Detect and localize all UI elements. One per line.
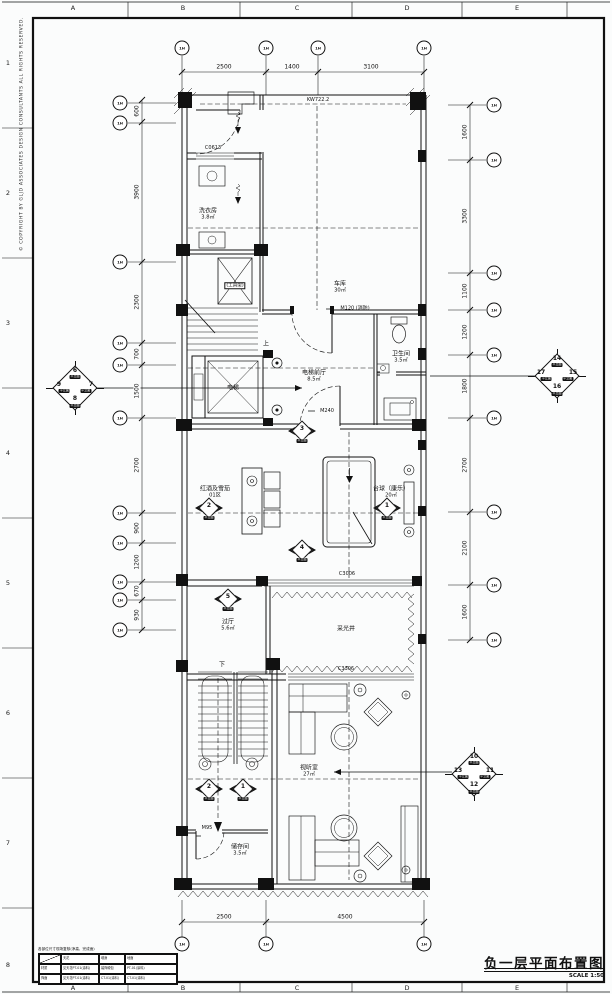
grid-number-left: 3 xyxy=(6,319,10,327)
grid-number-left: 4 xyxy=(6,449,10,457)
grid-bubble: 1H xyxy=(487,266,502,281)
room-label-wine: 红酒及雪茄 01区 xyxy=(200,485,230,498)
table-cell: 装饰硬包 xyxy=(99,964,125,974)
room-name: 台球（康乐） xyxy=(373,485,409,492)
room-label-bath: 卫生间 3.5㎡ xyxy=(392,350,410,363)
direction-marker-2: 2 平立面 xyxy=(198,499,220,529)
room-label-garage: 车库 30㎡ xyxy=(334,280,346,293)
room-name: 电梯前厅 xyxy=(302,369,326,376)
stair-down-label: 下 xyxy=(219,661,225,668)
grid-bubble: 1H xyxy=(259,41,274,56)
floor-plan-linework xyxy=(0,0,612,994)
room-label-tool-rack: (工具架) xyxy=(224,281,245,289)
room-label-lobby: 电梯前厅 8.5㎡ xyxy=(302,369,326,382)
table-cell: PT-01(涂料) xyxy=(125,964,177,974)
grid-letter-top: D xyxy=(404,4,409,12)
grid-number-left: 1 xyxy=(6,59,10,67)
elevation-number: 12 xyxy=(451,782,497,788)
elevation-marker-bottom-right: 10 13 11 12 平立面 平立面 平立面 平立面 xyxy=(451,751,497,797)
grid-bubble: 1H xyxy=(175,41,190,56)
direction-caption: 平立面 xyxy=(381,516,392,520)
door-tag-m240: M240 xyxy=(320,408,334,414)
dim-left: 700 xyxy=(134,347,141,360)
title-underline xyxy=(484,968,604,969)
dim-top: 3100 xyxy=(362,64,379,71)
window-tag-c0613: C0613 xyxy=(205,145,221,151)
table-header-cell: 地面 xyxy=(125,954,177,964)
sheet-scale: SCALE 1:50 xyxy=(569,973,604,979)
elevation-caption: 平立面 xyxy=(59,389,70,393)
room-area: 3.5㎡ xyxy=(392,357,410,363)
grid-bubble: 1H xyxy=(113,255,128,270)
room-name: 卫生间 xyxy=(392,350,410,357)
grid-letter-bottom: B xyxy=(181,984,185,992)
direction-number: 2 xyxy=(198,503,220,509)
elevation-number: 7 xyxy=(68,382,114,388)
room-label-lightwell: 采光井 xyxy=(337,625,355,632)
elevation-caption: 平立面 xyxy=(468,790,479,794)
door-tag-m120: M120 (消防) xyxy=(340,305,369,312)
direction-marker-2b: 2 平立面 xyxy=(198,780,220,810)
dim-left: 2300 xyxy=(134,293,141,310)
sheet-title: 负一层平面布置图 xyxy=(484,952,604,972)
room-name: 洗衣房 xyxy=(199,207,217,214)
table-cell: CT-01(涂料) xyxy=(99,974,125,984)
grid-bubble: 1H xyxy=(487,303,502,318)
dim-left: 2700 xyxy=(134,456,141,473)
grid-bubble: 1H xyxy=(417,937,432,952)
direction-number: 1 xyxy=(376,503,398,509)
direction-number: 1 xyxy=(232,784,254,790)
grid-bubble: 1H xyxy=(311,41,326,56)
dim-right: 3300 xyxy=(462,207,469,224)
finish-note: 各部位尺寸现场复核(净高、完成面) xyxy=(38,947,95,952)
window-tag-c3306: C3306 xyxy=(338,666,354,672)
dim-left: 670 xyxy=(134,584,141,597)
elevation-caption: 平立面 xyxy=(562,377,573,381)
grid-bubble: 1H xyxy=(113,96,128,111)
table-cell: CT-01(涂料) xyxy=(125,974,177,984)
room-label-av: 视听室 27㎡ xyxy=(300,764,318,777)
elevation-caption: 平立面 xyxy=(479,775,490,779)
door-tag-m95: M95 xyxy=(202,825,213,831)
elevation-number: 11 xyxy=(467,768,513,774)
grid-letter-bottom: C xyxy=(295,984,300,992)
room-label-billiard: 台球（康乐） 20㎡ xyxy=(373,485,409,498)
elevation-marker-right: 14 17 15 16 平立面 平立面 平立面 平立面 xyxy=(534,353,580,399)
room-name: 储存间 xyxy=(231,843,249,850)
table-cell: 见天花PT-01(涂料) xyxy=(61,964,99,974)
grid-number-left: 8 xyxy=(6,961,10,969)
grid-bubble: 1H xyxy=(417,41,432,56)
table-header-cell: 墙身 xyxy=(99,954,125,964)
room-label-elevator: 电梯 xyxy=(227,384,239,391)
elevation-caption: 平立面 xyxy=(458,775,469,779)
direction-marker-1: 1 平立面 xyxy=(376,499,398,529)
room-area: 20㎡ xyxy=(373,492,409,498)
room-name: 车库 xyxy=(334,280,346,287)
grid-bubble: 1H xyxy=(259,937,274,952)
room-zone: 01区 xyxy=(200,492,230,498)
finish-schedule-table: 天花 墙身 地面 材质 见天花PT-01(涂料) 装饰硬包 PT-01(涂料) … xyxy=(38,953,178,985)
grid-letter-top: A xyxy=(71,4,75,12)
direction-caption: 平立面 xyxy=(222,607,233,611)
dim-bottom: 4500 xyxy=(336,914,353,921)
grid-bubble: 1H xyxy=(113,336,128,351)
dim-right: 1100 xyxy=(462,282,469,299)
grid-letter-top: B xyxy=(181,4,185,12)
dim-right: 1800 xyxy=(462,377,469,394)
grid-bubble: 1H xyxy=(487,578,502,593)
table-header-cell: 天花 xyxy=(61,954,99,964)
elevation-caption: 平立面 xyxy=(80,389,91,393)
direction-caption: 平立面 xyxy=(296,439,307,443)
stair-up-label: 上 xyxy=(263,340,269,347)
dim-left: 600 xyxy=(134,104,141,117)
direction-marker-4: 4 平立面 xyxy=(291,541,313,571)
room-label-hall: 过厅 5.6㎡ xyxy=(221,618,234,631)
grid-bubble: 1H xyxy=(113,411,128,426)
room-area: 30㎡ xyxy=(334,287,346,293)
room-label-laundry: 洗衣房 3.8㎡ xyxy=(199,207,217,220)
grid-bubble: 1H xyxy=(487,505,502,520)
grid-number-left: 7 xyxy=(6,839,10,847)
direction-number: 5 xyxy=(217,594,239,600)
elevation-caption: 平立面 xyxy=(69,375,80,379)
table-header-cell xyxy=(39,954,61,964)
copyright-text: © COPYRIGHT BY GLJD ASSOCIATES DESIGN CO… xyxy=(20,19,25,251)
grid-letter-top: E xyxy=(515,4,519,12)
grid-bubble: 1H xyxy=(487,411,502,426)
grid-bubble: 1H xyxy=(113,506,128,521)
grid-bubble: 1H xyxy=(487,153,502,168)
title-underline xyxy=(484,971,604,972)
grid-letter-bottom: A xyxy=(71,984,75,992)
room-area: 3.8㎡ xyxy=(199,214,217,220)
dim-right: 1200 xyxy=(462,323,469,340)
room-area: 5.6㎡ xyxy=(221,625,234,631)
direction-caption: 平立面 xyxy=(296,558,307,562)
room-name: 红酒及雪茄 xyxy=(200,485,230,492)
grid-number-left: 2 xyxy=(6,189,10,197)
table-cell: 材质 xyxy=(39,964,61,974)
elevation-number: 8 xyxy=(52,396,98,402)
elevation-marker-left: 6 9 7 8 平立面 平立面 平立面 平立面 xyxy=(52,365,98,411)
grid-bubble: 1H xyxy=(113,116,128,131)
table-cell: 饰面 xyxy=(39,974,61,984)
elevation-number: 16 xyxy=(534,384,580,390)
dim-left: 1200 xyxy=(134,553,141,570)
grid-letter-top: C xyxy=(295,4,300,12)
dim-right: 2100 xyxy=(462,539,469,556)
grid-number-left: 6 xyxy=(6,709,10,717)
elevation-number: 15 xyxy=(550,370,596,376)
direction-marker-3: 3 平立面 xyxy=(291,422,313,452)
grid-bubble: 1H xyxy=(487,98,502,113)
direction-caption: 平立面 xyxy=(237,797,248,801)
grid-bubble: 1H xyxy=(487,348,502,363)
room-area: 3.5㎡ xyxy=(231,850,249,856)
room-label-storage: 储存间 3.5㎡ xyxy=(231,843,249,856)
dim-top: 1400 xyxy=(283,64,300,71)
direction-marker-1b: 1 平立面 xyxy=(232,780,254,810)
dim-bottom: 2500 xyxy=(215,914,232,921)
dim-right: 2700 xyxy=(462,456,469,473)
grid-bubble: 1H xyxy=(113,358,128,373)
direction-marker-5: 5 平立面 xyxy=(217,590,239,620)
dim-right: 1600 xyxy=(462,123,469,140)
dim-left: 1500 xyxy=(134,382,141,399)
room-name: (工具架) xyxy=(224,282,245,289)
room-name: 视听室 xyxy=(300,764,318,771)
grid-number-left: 5 xyxy=(6,579,10,587)
elevation-caption: 平立面 xyxy=(468,761,479,765)
room-area: 27㎡ xyxy=(300,771,318,777)
elevation-caption: 平立面 xyxy=(541,377,552,381)
grid-letter-bottom: E xyxy=(515,984,519,992)
direction-caption: 平立面 xyxy=(203,516,214,520)
grid-bubble: 1H xyxy=(113,575,128,590)
elevation-caption: 平立面 xyxy=(551,363,562,367)
grid-bubble: 1H xyxy=(175,937,190,952)
elevation-caption: 平立面 xyxy=(551,392,562,396)
window-tag-c3006: C3006 xyxy=(339,571,355,577)
grid-letter-bottom: D xyxy=(404,984,409,992)
table-cell: 见天花PT-01(涂料) xyxy=(61,974,99,984)
dim-top: 2500 xyxy=(215,64,232,71)
direction-number: 4 xyxy=(291,545,313,551)
direction-number: 2 xyxy=(198,784,220,790)
dim-right: 1600 xyxy=(462,603,469,620)
grid-bubble: 1H xyxy=(487,633,502,648)
elevation-caption: 平立面 xyxy=(69,404,80,408)
grid-bubble: 1H xyxy=(113,536,128,551)
dim-left: 3900 xyxy=(134,183,141,200)
direction-caption: 平立面 xyxy=(203,797,214,801)
level-note: KW722.2 xyxy=(307,97,329,103)
direction-number: 3 xyxy=(291,426,313,432)
grid-bubble: 1H xyxy=(113,623,128,638)
dim-left: 930 xyxy=(134,608,141,621)
drawing-sheet: © COPYRIGHT BY GLJD ASSOCIATES DESIGN CO… xyxy=(0,0,612,994)
dim-left: 900 xyxy=(134,521,141,534)
grid-bubble: 1H xyxy=(113,593,128,608)
room-area: 8.5㎡ xyxy=(302,376,326,382)
